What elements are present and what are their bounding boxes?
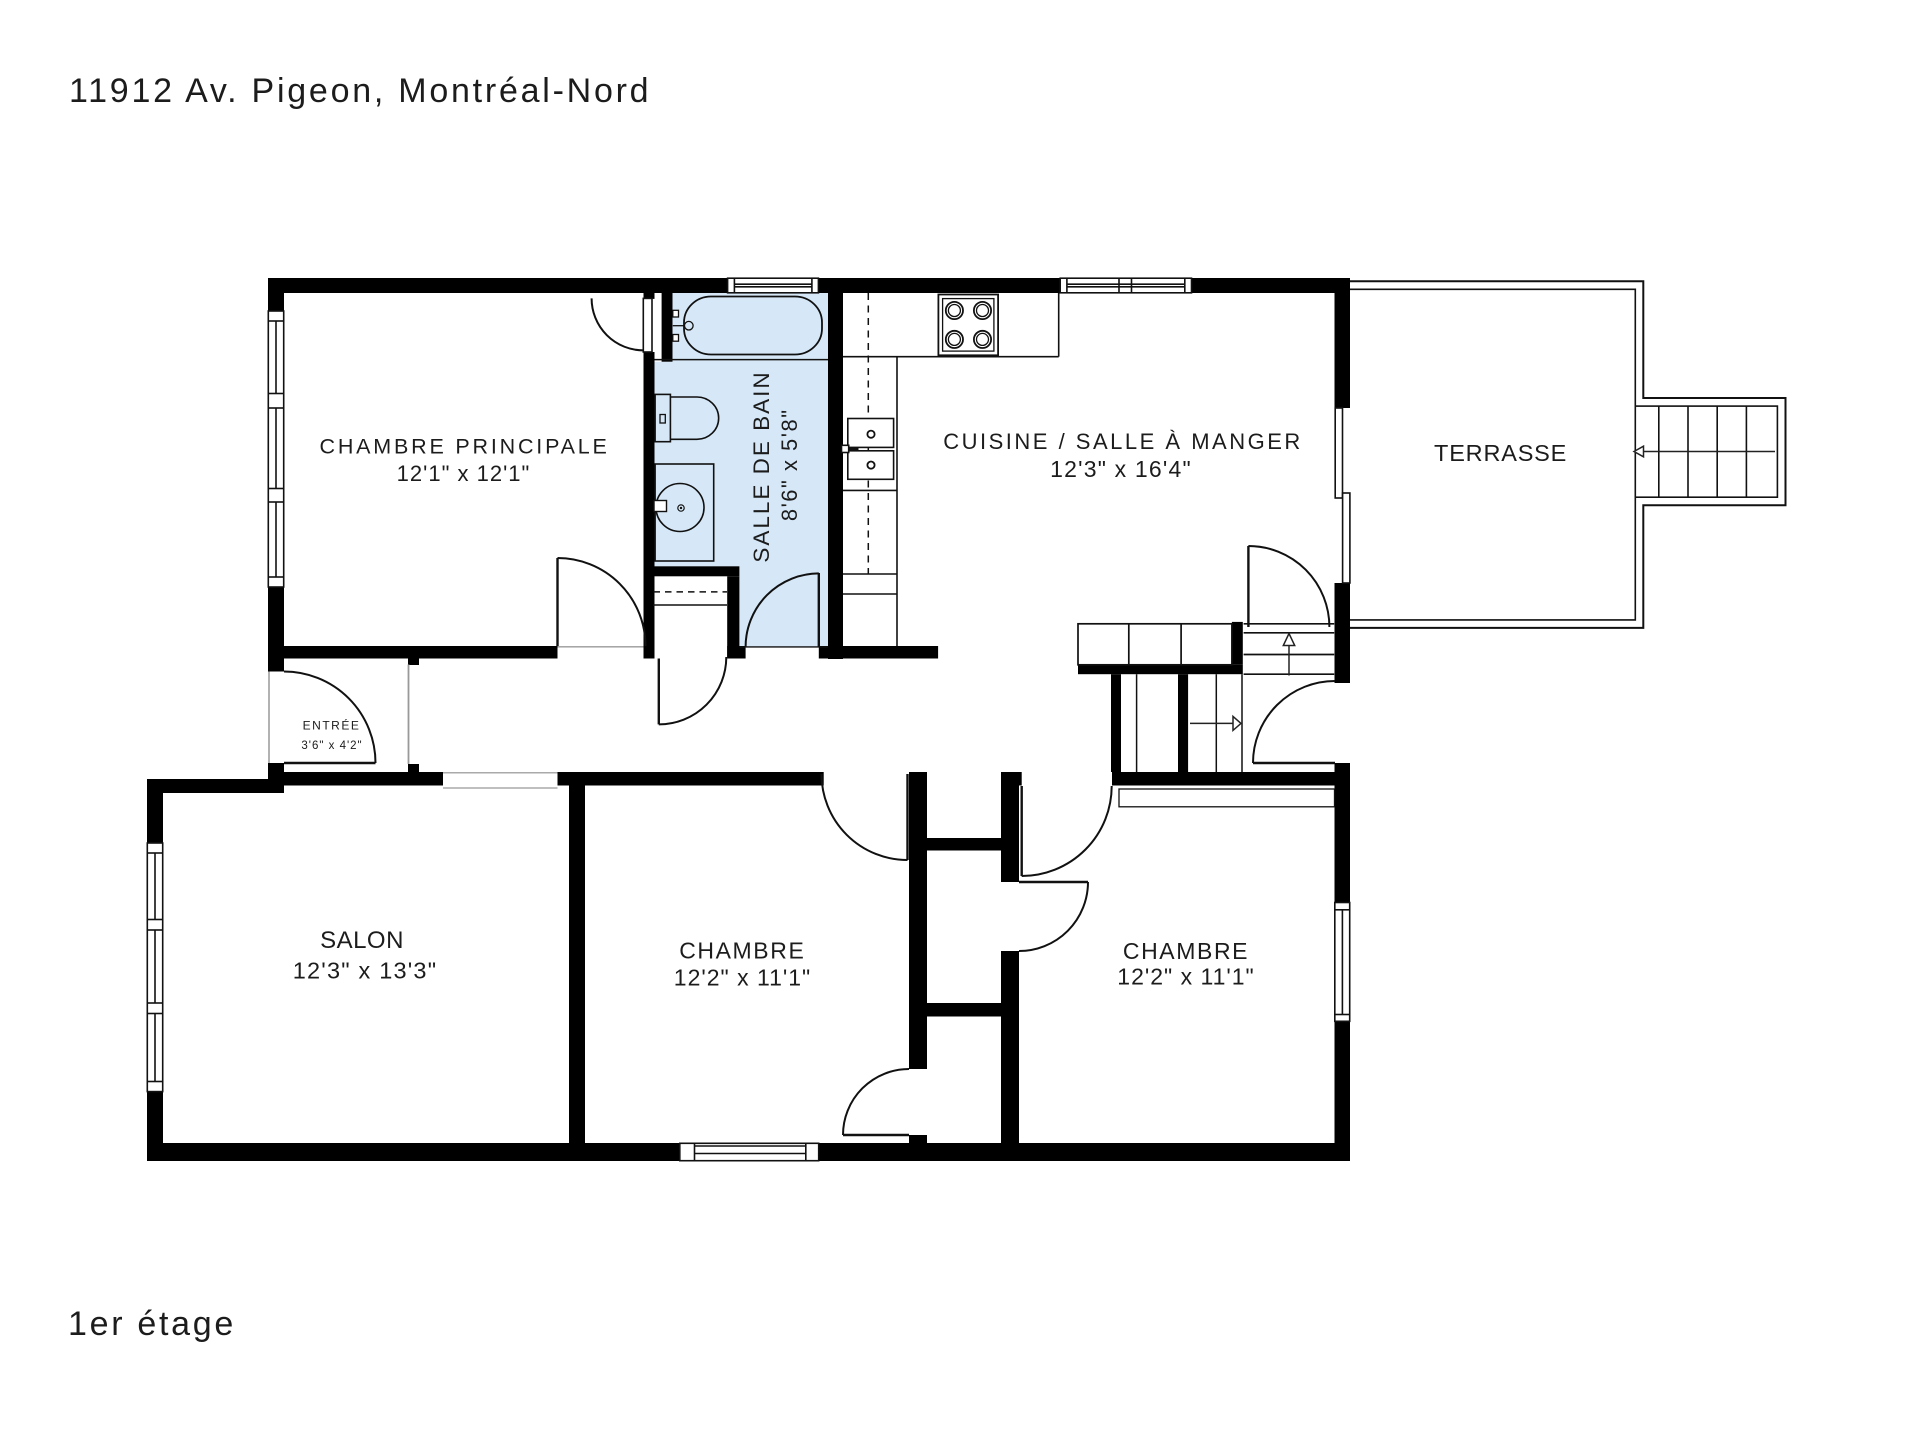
svg-text:11912 Av. Pigeon, Montréal-Nor: 11912 Av. Pigeon, Montréal-Nord	[69, 72, 651, 110]
svg-text:SALLE DE BAIN: SALLE DE BAIN	[749, 370, 774, 562]
svg-text:1er étage: 1er étage	[68, 1305, 236, 1343]
svg-text:12'3" x 16'4": 12'3" x 16'4"	[1050, 456, 1192, 482]
svg-text:12'2" x 11'1": 12'2" x 11'1"	[1117, 964, 1254, 990]
svg-text:CHAMBRE PRINCIPALE: CHAMBRE PRINCIPALE	[320, 435, 610, 459]
svg-text:12'1" x 12'1": 12'1" x 12'1"	[397, 461, 531, 486]
svg-text:3'6" x 4'2": 3'6" x 4'2"	[301, 740, 362, 752]
svg-text:ENTRÉE: ENTRÉE	[303, 718, 361, 733]
svg-text:12'2" x 11'1": 12'2" x 11'1"	[674, 965, 811, 991]
svg-text:CHAMBRE: CHAMBRE	[679, 938, 805, 964]
svg-text:SALON: SALON	[320, 927, 404, 954]
svg-text:12'3" x 13'3": 12'3" x 13'3"	[293, 958, 437, 984]
svg-text:CUISINE / SALLE À MANGER: CUISINE / SALLE À MANGER	[943, 429, 1303, 454]
svg-text:TERRASSE: TERRASSE	[1434, 440, 1567, 466]
svg-text:8'6" x 5'8": 8'6" x 5'8"	[777, 408, 802, 521]
svg-text:CHAMBRE: CHAMBRE	[1123, 938, 1249, 964]
